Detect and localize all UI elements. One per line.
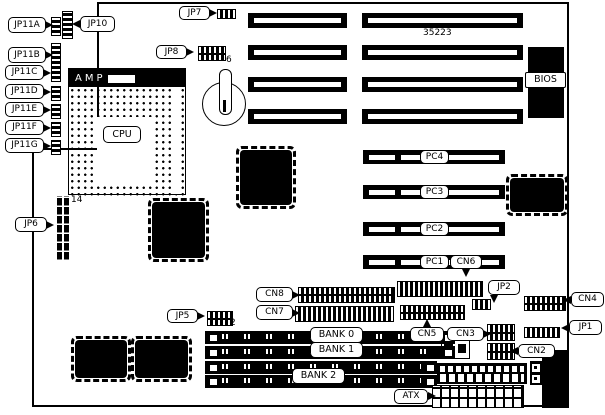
chip-qfp-4 (75, 340, 127, 378)
jp7-jumper-block (217, 9, 236, 19)
isa-slot-2-right (362, 45, 523, 60)
cn5-pointer (423, 319, 431, 327)
isa-slot-4-left (248, 109, 347, 124)
jp11b-pointer (45, 51, 53, 59)
cn5-label: CN5 (410, 327, 444, 342)
jp11d-jumper (51, 86, 61, 101)
jp11f-pointer (43, 124, 51, 132)
jp1-label: JP1 (569, 320, 602, 335)
kb-pin-b (531, 374, 541, 384)
jp11g-pointer (43, 142, 51, 150)
cpu-socket-top-bar: AMP (69, 69, 185, 87)
kb-pin-a (531, 363, 541, 373)
cn8-label: CN8 (256, 287, 293, 302)
atx-pointer (428, 392, 436, 400)
cn7-connector (295, 306, 394, 322)
cn4-pointer (563, 296, 571, 304)
jp11c-pointer (43, 69, 51, 77)
bank0-label: BANK 0 (310, 327, 363, 343)
jp11g-label: JP11G (5, 138, 44, 153)
atx-power-connector (432, 385, 524, 408)
cn3-connector (487, 324, 515, 341)
jp8-label: JP8 (156, 45, 187, 59)
motherboard-diagram: 35223 BIOS PC4 PC3 PC2 PC1 AMP CPU (0, 0, 605, 415)
jp5-label: JP5 (167, 309, 198, 323)
jp6-pointer (46, 221, 54, 229)
jp6-label: JP6 (15, 217, 47, 232)
part-number: 35223 (423, 29, 452, 38)
jp7-pointer (209, 9, 217, 17)
board-edge-left-lower (32, 148, 34, 407)
chip-qfp-1 (240, 150, 292, 205)
isa-slot-3-left (248, 77, 347, 92)
jp11e-label: JP11E (5, 102, 44, 117)
cn3-label: CN3 (447, 327, 484, 341)
cn3-pointer (483, 330, 491, 338)
cn7-label: CN7 (256, 305, 293, 320)
isa-slot-1-left (248, 13, 347, 28)
bank1-label: BANK 1 (310, 342, 363, 358)
keyboard-connector (542, 350, 569, 408)
jp1-pointer (561, 324, 569, 332)
cn2-pointer (510, 347, 518, 355)
jp6-pin-header (57, 196, 69, 261)
bank2-label: BANK 2 (292, 368, 345, 384)
cn5-connector (400, 305, 465, 320)
chip-qfp-2 (152, 202, 205, 258)
jp2-pointer (490, 295, 498, 303)
cn6-connector (397, 281, 483, 297)
isa-slot-2-left (248, 45, 347, 60)
isa-slot-4-right (362, 109, 523, 124)
jp11a-label: JP11A (8, 17, 46, 33)
cn4-label: CN4 (571, 292, 604, 307)
pci-label-pc1: PC1 (420, 255, 449, 269)
jp11g-jumper (51, 140, 61, 155)
cpu-socket-channel (172, 89, 180, 194)
cn6-label: CN6 (450, 255, 482, 269)
socket-brand-text: AMP (75, 73, 106, 84)
jp11a-pointer (45, 21, 53, 29)
cn6-pointer (462, 269, 470, 277)
battery-clip (219, 69, 232, 115)
cn8-pointer (292, 291, 300, 299)
jp10-label: JP10 (80, 16, 115, 32)
jp11e-jumper (51, 104, 61, 119)
chip-qfp-3 (510, 178, 564, 212)
jp10-pointer (72, 20, 80, 28)
jp11c-jumper (51, 67, 61, 82)
atx-label: ATX (394, 389, 428, 404)
cn2-label: CN2 (518, 344, 555, 358)
isa-slot-3-right (362, 77, 523, 92)
jp6-pin-count: 14 (71, 196, 82, 205)
jp5-pin-count: 2 (230, 319, 236, 328)
pci-label-pc2: PC2 (420, 222, 449, 236)
jp8-pin-count: 6 (226, 56, 232, 65)
jp2-label: JP2 (488, 280, 520, 295)
chip-qfp-5 (135, 340, 188, 378)
cn8-connector (298, 287, 395, 303)
board-edge-top (97, 2, 569, 4)
pci-label-pc3: PC3 (420, 185, 449, 199)
jp11f-jumper (51, 122, 61, 137)
jp8-jumper-block (198, 46, 226, 61)
jp11f-label: JP11F (5, 120, 44, 135)
pci-label-pc4: PC4 (420, 150, 449, 164)
jp11d-pointer (43, 88, 51, 96)
jp7-label: JP7 (179, 6, 210, 20)
bios-label: BIOS (525, 72, 566, 88)
at-power-connector (437, 363, 527, 384)
jp11b-label: JP11B (8, 47, 46, 63)
cn7-pointer (292, 309, 300, 317)
cpu-label: CPU (103, 126, 141, 143)
jp11d-label: JP11D (5, 84, 44, 99)
jp5-pointer (197, 312, 205, 320)
jp1-pin-strip (524, 327, 560, 338)
jp8-pointer (186, 48, 194, 56)
cn4-connector (524, 296, 566, 311)
jp11c-label: JP11C (5, 65, 44, 80)
jp11e-pointer (43, 106, 51, 114)
socket-logo-box (108, 75, 135, 83)
jp2-jumper-block (472, 299, 491, 310)
isa-slot-1-right (362, 13, 523, 28)
